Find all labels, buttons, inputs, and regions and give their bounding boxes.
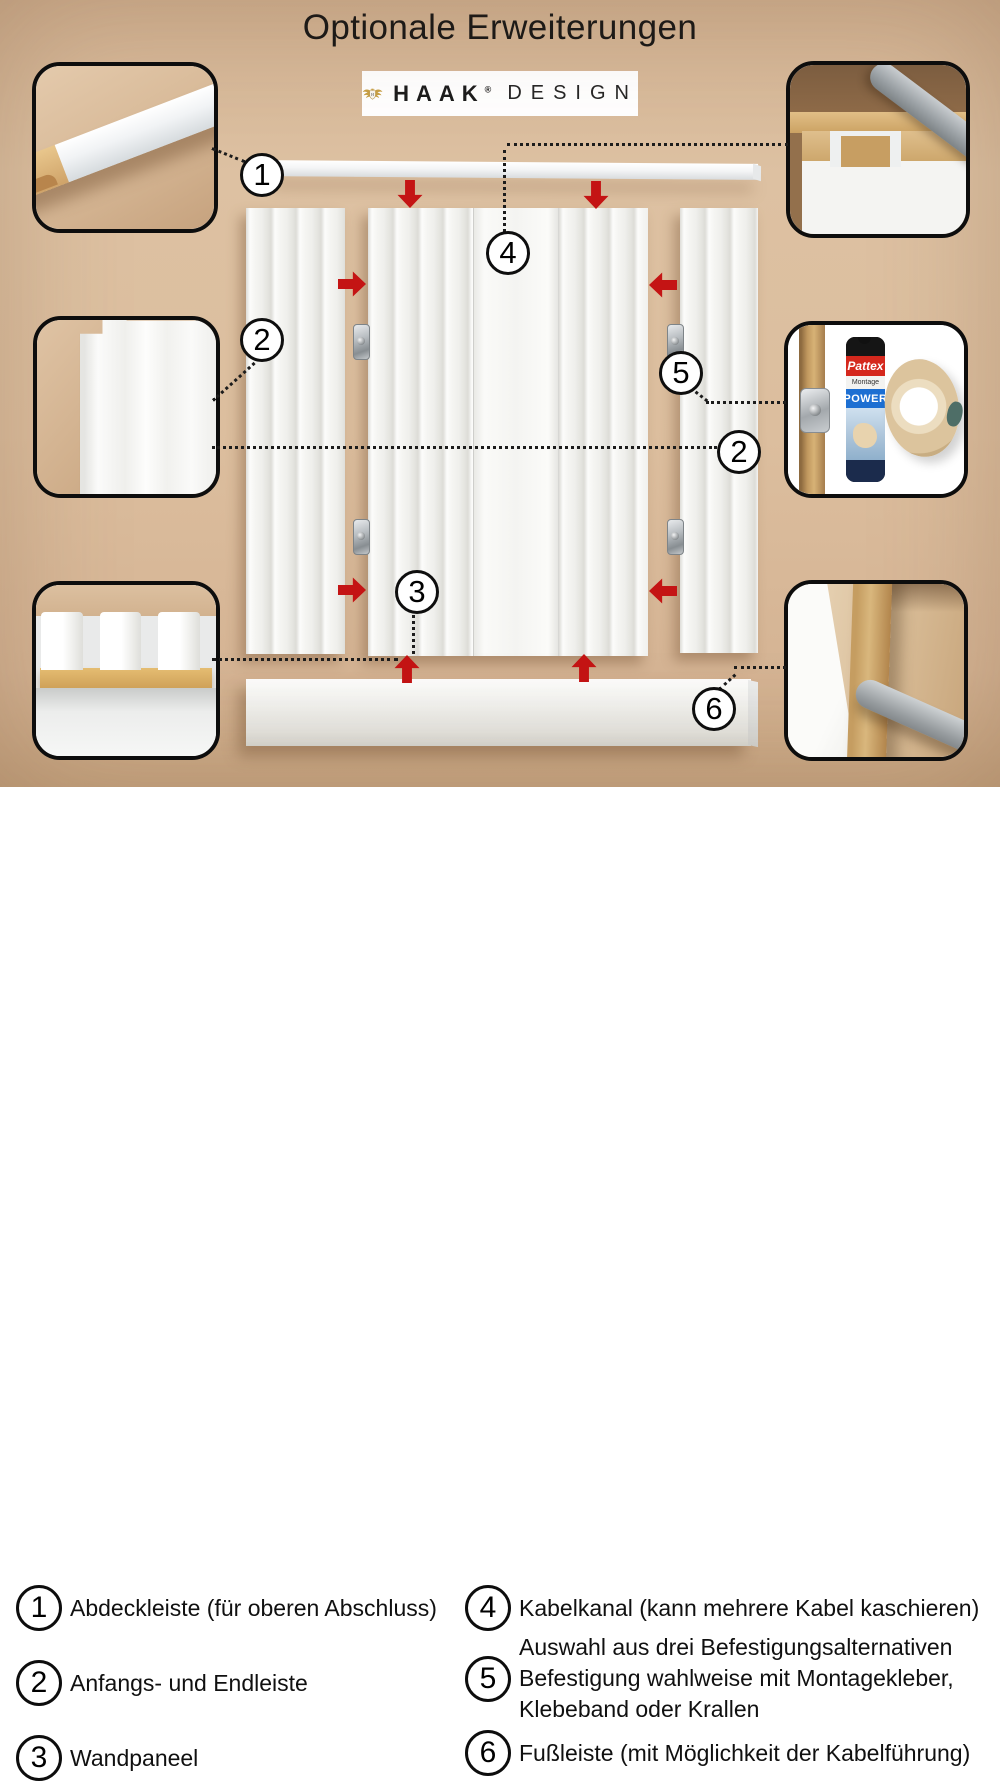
callout-1: 1 (240, 153, 284, 197)
fixing-options-photo: Pattex Montage POWER (788, 325, 964, 494)
brand-name: HAAK® (393, 81, 491, 107)
end-strip-left (246, 208, 345, 654)
detail-photo-wall-panel (32, 581, 220, 760)
detail-photo-skirting (784, 580, 968, 761)
callout-2-right: 2 (717, 430, 761, 474)
cartridge-cap-band (846, 337, 885, 356)
glue-brand-label: Pattex (846, 356, 885, 376)
callout-3: 3 (395, 570, 439, 614)
legend-number-6: 6 (465, 1730, 511, 1776)
dotted-connector (503, 150, 506, 232)
dotted-connector (734, 666, 786, 669)
mdf-board (846, 580, 891, 761)
white-face (55, 77, 218, 182)
cover-strip-photo (36, 66, 214, 229)
slat (158, 612, 199, 669)
dotted-connector (412, 608, 415, 654)
cover-strip-profile (32, 77, 218, 199)
cartridge-bottom-band (846, 460, 885, 482)
arrow-up-icon (571, 654, 597, 682)
legend-item-4: 4 Kabelkanal (kann mehrere Kabel kaschie… (465, 1585, 979, 1631)
callout-4: 4 (486, 231, 530, 275)
mounting-claw (353, 324, 370, 360)
dotted-connector (507, 143, 788, 146)
skirting-photo (788, 584, 964, 757)
slat (100, 612, 141, 669)
background-band (36, 585, 216, 616)
dotted-connector (706, 401, 786, 404)
legend-item-6: 6 Fußleiste (mit Möglichkeit der Kabelfü… (465, 1730, 970, 1776)
arrow-left-icon (649, 272, 677, 298)
brand-logo: H HAAK® DESIGN (362, 71, 638, 116)
arrow-left-icon (649, 578, 677, 604)
adhesive-tape-roll (878, 354, 965, 461)
end-strip-profile (80, 316, 220, 498)
channel-body (802, 131, 970, 234)
crest-letter: H (371, 91, 374, 96)
detail-photo-end-strip (33, 316, 220, 498)
legend-item-1: 1 Abdeckleiste (für oberen Abschluss) (16, 1585, 437, 1631)
callout-6: 6 (692, 687, 736, 731)
haak-crest-icon: H (362, 75, 383, 113)
legend-item-5: 5 Auswahl aus drei Befestigungsalternati… (465, 1632, 954, 1725)
cartridge-image-band (846, 408, 885, 460)
legend: 1 Abdeckleiste (für oberen Abschluss) 2 … (0, 787, 1000, 1000)
cable-channel-cover (473, 208, 558, 656)
page-title: Optionale Erweiterungen (0, 8, 1000, 48)
legend-number-1: 1 (16, 1585, 62, 1631)
glue-cartridge: Pattex Montage POWER (846, 337, 885, 482)
cable-channel-photo (790, 65, 966, 234)
callout-5: 5 (659, 351, 703, 395)
legend-number-4: 4 (465, 1585, 511, 1631)
legend-number-3: 3 (16, 1735, 62, 1781)
panel-cross-section (36, 616, 216, 688)
legend-item-3: 3 Wandpaneel (16, 1735, 198, 1781)
groove-inner (841, 136, 889, 167)
arrow-down-icon (583, 181, 609, 209)
registered-mark: ® (485, 84, 492, 94)
legend-number-2: 2 (16, 1660, 62, 1706)
legend-label-5-line-2: Befestigung wahlweise mit Montagekleber, (519, 1663, 954, 1694)
end-strip-photo (37, 320, 216, 494)
skirting-board (246, 679, 751, 746)
detail-photo-cover-strip (32, 62, 218, 233)
wall-panel-slats-right (559, 208, 648, 656)
brand-suffix: DESIGN (507, 82, 638, 105)
arrow-down-icon (397, 180, 423, 208)
product-infographic: Optionale Erweiterungen H HAAK® DESIGN (0, 0, 1000, 1000)
photo-stage: Optionale Erweiterungen H HAAK® DESIGN (0, 0, 1000, 787)
callout-2-left: 2 (240, 318, 284, 362)
mounting-claw (353, 519, 370, 555)
table-surface (36, 688, 216, 756)
cover-strip (268, 160, 758, 180)
dotted-connector (212, 446, 717, 449)
legend-number-5: 5 (465, 1656, 511, 1702)
legend-label-5: Auswahl aus drei Befestigungsalternative… (519, 1632, 954, 1725)
legend-label-3: Wandpaneel (70, 1745, 198, 1772)
slat (41, 612, 82, 669)
legend-label-4: Kabelkanal (kann mehrere Kabel kaschiere… (519, 1595, 979, 1622)
detail-photo-cable-channel (786, 61, 970, 238)
detail-photo-fixing-options: Pattex Montage POWER (784, 321, 968, 498)
glue-line-label: Montage (846, 376, 885, 389)
legend-label-5-line-1: Auswahl aus drei Befestigungsalternative… (519, 1632, 954, 1663)
wall-panel-photo (36, 585, 216, 756)
mdf-base (40, 668, 213, 687)
brand-text: HAAK (393, 81, 485, 106)
legend-label-1: Abdeckleiste (für oberen Abschluss) (70, 1595, 437, 1622)
mounting-claw (667, 519, 684, 555)
metal-claw (800, 388, 830, 434)
dotted-connector (212, 658, 398, 661)
glue-variant-label: POWER (846, 389, 885, 408)
legend-label-2: Anfangs- und Endleiste (70, 1670, 308, 1697)
legend-item-2: 2 Anfangs- und Endleiste (16, 1660, 308, 1706)
legend-label-6: Fußleiste (mit Möglichkeit der Kabelführ… (519, 1740, 970, 1767)
legend-label-5-line-3: Klebeband oder Krallen (519, 1694, 954, 1725)
cable-groove (830, 131, 900, 167)
